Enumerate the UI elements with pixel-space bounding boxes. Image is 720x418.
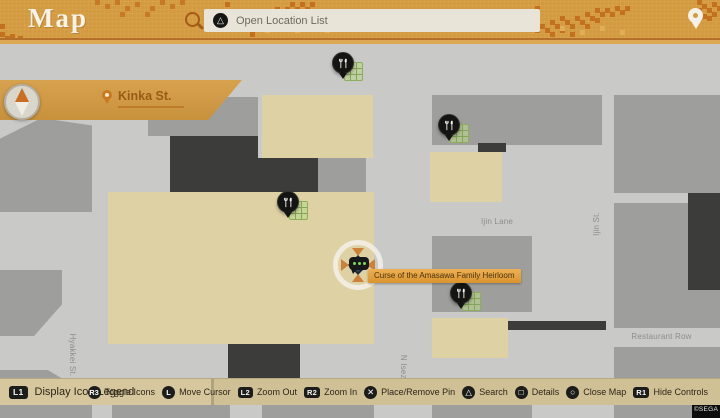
control-label: Zoom In bbox=[324, 387, 357, 397]
compass-south-needle bbox=[15, 102, 29, 116]
restaurant-icon bbox=[332, 52, 354, 74]
building bbox=[430, 152, 502, 202]
close-map-control[interactable]: ○ Close Map bbox=[566, 386, 626, 399]
search-icon bbox=[185, 12, 200, 27]
building bbox=[262, 95, 373, 158]
building bbox=[688, 290, 720, 328]
control-label: Hide Controls bbox=[653, 387, 708, 397]
street-label: Hyakkei St. bbox=[67, 325, 77, 385]
control-label: Close Map bbox=[583, 387, 626, 397]
control-bar: L1 Display Icon Legend R3 Toggle Icons L… bbox=[0, 378, 720, 405]
marker-tail bbox=[284, 212, 292, 218]
marker-tail bbox=[457, 303, 465, 309]
building bbox=[228, 344, 300, 382]
header-bar: Map △ Open Location List bbox=[0, 0, 720, 40]
control-label: Toggle Icons bbox=[105, 387, 156, 397]
restaurant-icon bbox=[450, 282, 472, 304]
building bbox=[318, 158, 366, 192]
control-label: Zoom Out bbox=[257, 387, 297, 397]
building bbox=[478, 143, 506, 152]
place-remove-pin-control[interactable]: ✕ Place/Remove Pin bbox=[364, 386, 455, 399]
street-label: Restaurant Row bbox=[619, 332, 704, 342]
open-location-list-button[interactable]: △ Open Location List bbox=[204, 9, 540, 32]
side-case-bubble-icon[interactable] bbox=[349, 257, 369, 270]
building bbox=[688, 193, 720, 290]
toggle-icons-control[interactable]: R3 Toggle Icons bbox=[88, 386, 156, 399]
marker-tail bbox=[339, 73, 347, 79]
building bbox=[0, 118, 92, 212]
street-label: Ijin St. bbox=[592, 199, 602, 249]
open-location-list-label: Open Location List bbox=[236, 15, 328, 27]
mosaic-decoration bbox=[560, 26, 565, 31]
r3-stick-icon: R3 bbox=[88, 386, 101, 399]
zoom-in-control[interactable]: R2 Zoom In bbox=[304, 387, 357, 398]
mosaic-decoration bbox=[95, 0, 100, 5]
cross-button-icon: ✕ bbox=[364, 386, 377, 399]
mosaic-decoration bbox=[697, 0, 702, 5]
zoom-out-control[interactable]: L2 Zoom Out bbox=[238, 387, 297, 398]
control-hints: R3 Toggle Icons L Move Cursor L2 Zoom Ou… bbox=[88, 379, 708, 405]
restaurant-icon bbox=[277, 191, 299, 213]
restaurant-marker[interactable] bbox=[450, 282, 482, 312]
left-stick-icon: L bbox=[162, 386, 175, 399]
building bbox=[228, 158, 318, 192]
restaurant-marker[interactable] bbox=[277, 191, 309, 221]
hide-controls-control[interactable]: R1 Hide Controls bbox=[633, 387, 708, 398]
mosaic-decoration bbox=[225, 2, 230, 7]
r2-button-icon: R2 bbox=[304, 387, 320, 398]
l2-button-icon: L2 bbox=[238, 387, 253, 398]
building bbox=[432, 318, 508, 358]
street-label: Ijin Lane bbox=[467, 217, 527, 227]
control-label: Move Cursor bbox=[179, 387, 231, 397]
restaurant-icon bbox=[438, 114, 460, 136]
triangle-button-icon: △ bbox=[462, 386, 475, 399]
control-label: Search bbox=[479, 387, 508, 397]
search-control[interactable]: △ Search bbox=[462, 386, 508, 399]
restaurant-marker[interactable] bbox=[438, 114, 470, 144]
cursor-arrow-down bbox=[352, 274, 364, 282]
building bbox=[614, 203, 688, 328]
square-button-icon: □ bbox=[515, 386, 528, 399]
bubble-dots bbox=[353, 262, 356, 265]
l1-button-icon: L1 bbox=[9, 386, 28, 399]
move-cursor-control[interactable]: L Move Cursor bbox=[162, 386, 231, 399]
triangle-button-icon: △ bbox=[213, 13, 228, 28]
building bbox=[614, 95, 720, 193]
page-title: Map bbox=[28, 3, 88, 34]
restaurant-marker[interactable] bbox=[332, 52, 364, 82]
header-edge bbox=[0, 40, 720, 44]
map-canvas[interactable]: Ijin LaneIjin AlleyRestaurant RowHyakkei… bbox=[0, 40, 720, 378]
building bbox=[0, 270, 62, 336]
control-label: Details bbox=[532, 387, 560, 397]
compass-north-needle bbox=[15, 88, 29, 102]
r1-button-icon: R1 bbox=[633, 387, 649, 398]
control-label: Place/Remove Pin bbox=[381, 387, 455, 397]
cursor-tooltip: Curse of the Amasawa Family Heirloom bbox=[368, 269, 521, 283]
circle-button-icon: ○ bbox=[566, 386, 579, 399]
building bbox=[508, 321, 606, 330]
details-control[interactable]: □ Details bbox=[515, 386, 560, 399]
marker-tail bbox=[445, 135, 453, 141]
current-location-label: Kinka St. bbox=[118, 89, 184, 108]
location-pin-icon bbox=[102, 90, 112, 100]
current-location: Kinka St. bbox=[102, 89, 184, 108]
mosaic-decoration bbox=[0, 24, 5, 29]
compass-icon bbox=[4, 84, 40, 120]
map-pin-icon[interactable] bbox=[688, 8, 703, 23]
